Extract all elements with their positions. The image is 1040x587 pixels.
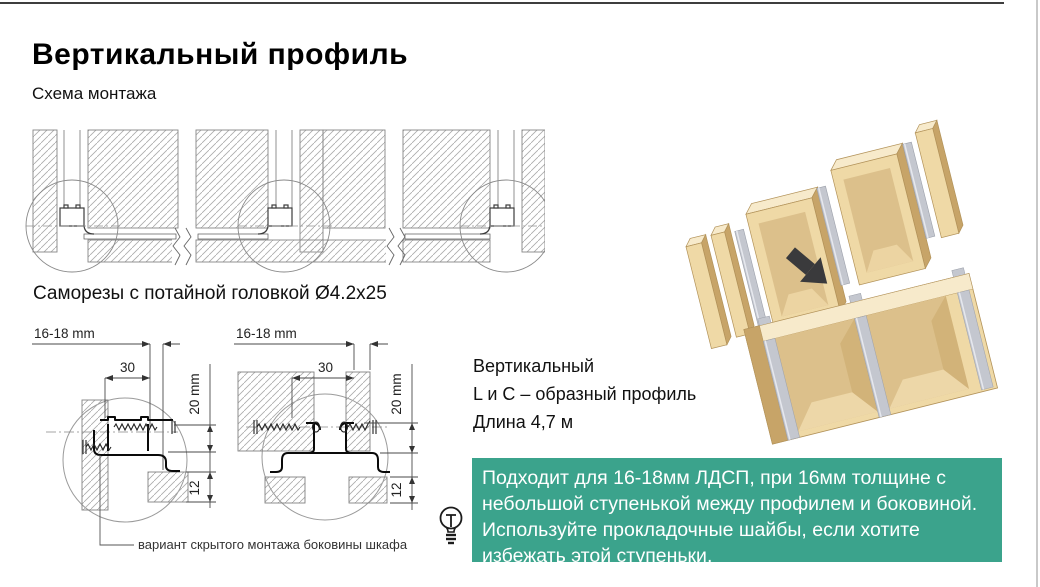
lightbulb-icon (436, 505, 466, 553)
dim-thickness-right: 16-18 mm (236, 326, 297, 341)
profile-description-line2: L и C – образный профиль (473, 380, 696, 408)
screws-note: Саморезы с потайной головкой Ø4.2x25 (33, 283, 387, 305)
dim-width-left: 30 (120, 360, 135, 375)
dim-depth-left: 12 (187, 480, 202, 495)
profile-description-line1: Вертикальный (473, 352, 696, 380)
page-top-rule (0, 2, 1004, 4)
profile-description-line3: Длина 4,7 м (473, 408, 696, 436)
tip-line: Используйте прокладочные шайбы, если хот… (482, 517, 1002, 543)
detail-drawing-left: 16-18 mm 30 (28, 320, 233, 552)
page-title: Вертикальный профиль (32, 38, 408, 72)
mounting-scheme-drawing (20, 122, 545, 274)
exploded-3d-illustration (640, 115, 1040, 460)
dim-height-left: 20 mm (187, 373, 202, 414)
tip-line: избежать этой ступеньки. (482, 543, 1002, 569)
tip-line: небольшой ступенькой между профилем и бо… (482, 491, 1002, 517)
dim-height-right: 20 mm (389, 373, 404, 414)
document-page: Вертикальный профиль Схема монтажа (0, 0, 1040, 587)
detail-drawing-right: 16-18 mm 30 (230, 320, 442, 535)
tip-line: Подходит для 16-18мм ЛДСП, при 16мм толщ… (482, 465, 1002, 491)
dim-width-right: 30 (318, 360, 333, 375)
page-subtitle: Схема монтажа (32, 84, 156, 104)
dim-depth-right: 12 (389, 482, 404, 497)
profile-description: Вертикальный L и C – образный профиль Дл… (473, 352, 696, 436)
tip-box: Подходит для 16-18мм ЛДСП, при 16мм толщ… (472, 458, 1002, 562)
dim-thickness-left: 16-18 mm (34, 326, 95, 341)
hidden-mount-caption: вариант скрытого монтажа боковины шкафа (138, 537, 407, 552)
